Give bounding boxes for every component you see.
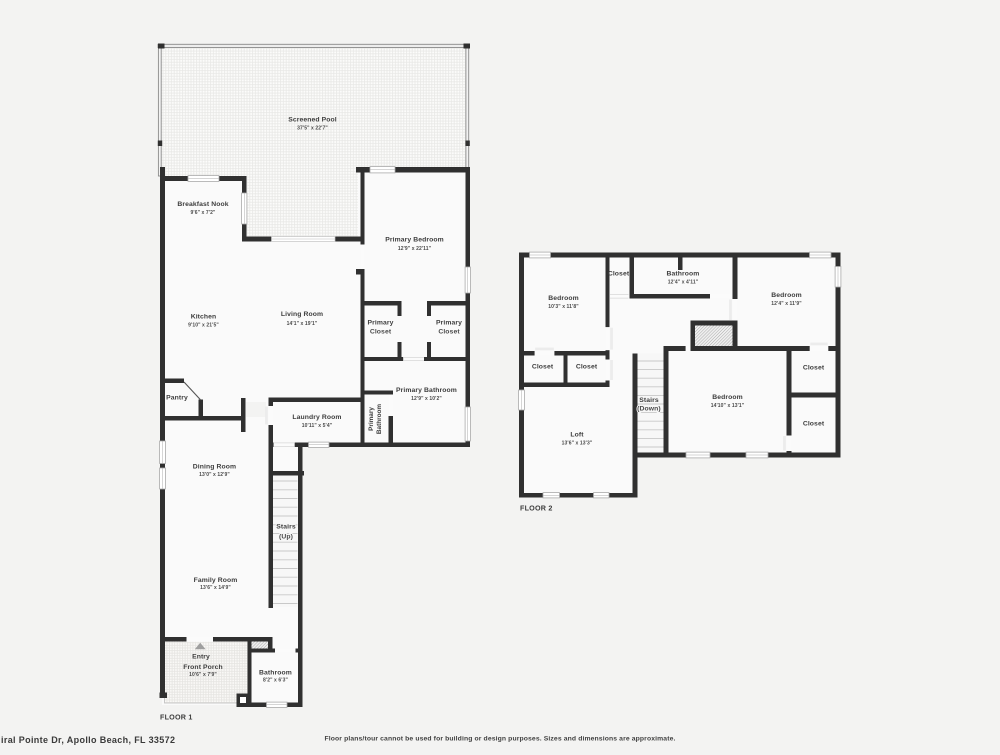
svg-text:10'11" x 5'4": 10'11" x 5'4" xyxy=(302,423,333,429)
svg-text:Breakfast Nook: Breakfast Nook xyxy=(177,201,228,208)
svg-text:Primary: Primary xyxy=(436,320,462,327)
svg-text:Closet: Closet xyxy=(803,421,825,428)
svg-text:Entry: Entry xyxy=(192,654,210,661)
svg-text:Closet: Closet xyxy=(370,329,392,336)
svg-text:10'6" x 7'9": 10'6" x 7'9" xyxy=(189,672,217,678)
svg-text:13'6" x 13'3": 13'6" x 13'3" xyxy=(562,441,593,447)
svg-text:10'3" x 11'8": 10'3" x 11'8" xyxy=(548,304,579,310)
svg-text:Floor plans/tour cannot be use: Floor plans/tour cannot be used for buil… xyxy=(324,736,675,743)
svg-text:13'6" x 14'9": 13'6" x 14'9" xyxy=(200,585,231,591)
svg-text:Stairs: Stairs xyxy=(276,524,296,531)
svg-text:Bedroom: Bedroom xyxy=(712,394,743,401)
svg-text:Closet: Closet xyxy=(576,364,598,371)
svg-text:Screened Pool: Screened Pool xyxy=(288,117,337,124)
svg-text:12'9" x 10'2": 12'9" x 10'2" xyxy=(411,396,442,402)
svg-text:Bathroom: Bathroom xyxy=(667,271,700,278)
svg-text:FLOOR 1: FLOOR 1 xyxy=(160,713,193,722)
svg-text:Bedroom: Bedroom xyxy=(548,295,579,302)
svg-text:12'4" x 4'11": 12'4" x 4'11" xyxy=(668,280,699,286)
svg-text:iral Pointe Dr, Apollo Beach,: iral Pointe Dr, Apollo Beach, FL 33572 xyxy=(1,735,175,745)
svg-text:Stairs: Stairs xyxy=(639,397,659,404)
svg-text:Pantry: Pantry xyxy=(166,395,188,402)
svg-text:14'1" x 19'1": 14'1" x 19'1" xyxy=(287,321,318,327)
svg-text:Primary: Primary xyxy=(367,320,393,327)
svg-text:13'0" x 12'9": 13'0" x 12'9" xyxy=(199,472,230,478)
svg-text:37'5" x 22'7": 37'5" x 22'7" xyxy=(297,126,328,132)
svg-text:Front Porch: Front Porch xyxy=(183,664,223,671)
svg-text:Bedroom: Bedroom xyxy=(771,292,802,299)
svg-text:12'4" x 11'9": 12'4" x 11'9" xyxy=(771,301,802,307)
svg-text:Bathroom: Bathroom xyxy=(259,670,292,677)
svg-text:Bathroom: Bathroom xyxy=(376,404,383,434)
svg-text:Primary: Primary xyxy=(368,407,375,431)
svg-text:8'2" x 6'3": 8'2" x 6'3" xyxy=(263,678,288,684)
svg-text:Closet: Closet xyxy=(532,364,554,371)
svg-text:9'10" x 21'5": 9'10" x 21'5" xyxy=(188,323,219,329)
svg-text:Closet: Closet xyxy=(803,365,825,372)
svg-text:9'6" x 7'2": 9'6" x 7'2" xyxy=(191,210,216,216)
svg-text:Primary Bathroom: Primary Bathroom xyxy=(396,387,457,394)
svg-text:Laundry Room: Laundry Room xyxy=(292,414,341,421)
svg-text:Closet: Closet xyxy=(608,271,630,278)
svg-text:Kitchen: Kitchen xyxy=(191,314,217,321)
svg-text:Closet: Closet xyxy=(438,329,460,336)
svg-text:Dining Room: Dining Room xyxy=(193,464,236,471)
svg-text:Primary Bedroom: Primary Bedroom xyxy=(385,237,444,244)
svg-text:Family Room: Family Room xyxy=(194,577,238,584)
svg-text:12'9" x 22'11": 12'9" x 22'11" xyxy=(398,246,432,252)
svg-text:Living Room: Living Room xyxy=(281,311,323,318)
svg-text:FLOOR 2: FLOOR 2 xyxy=(520,504,553,513)
svg-text:(Up): (Up) xyxy=(279,534,293,541)
svg-text:Loft: Loft xyxy=(570,432,584,439)
svg-text:(Down): (Down) xyxy=(637,406,661,413)
svg-text:14'10" x 13'1": 14'10" x 13'1" xyxy=(711,403,745,409)
